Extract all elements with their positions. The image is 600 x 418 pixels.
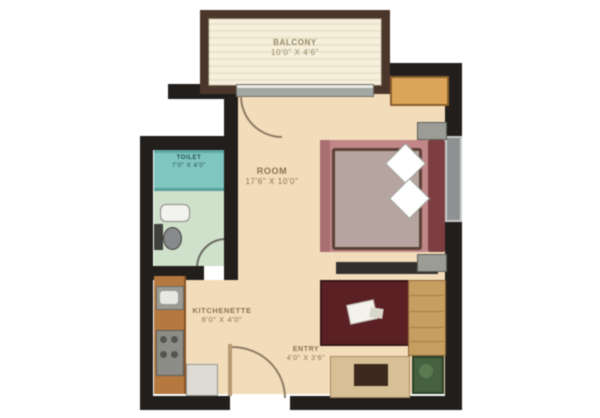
- room-dims: 17'6" X 10'0": [245, 177, 298, 187]
- bathroom-sink: [160, 204, 190, 222]
- refrigerator: [186, 364, 218, 396]
- toilet-tank: [154, 224, 163, 250]
- balcony-name: BALCONY: [271, 38, 319, 48]
- burner-icon: [171, 351, 178, 358]
- bed-footboard: [320, 140, 330, 252]
- burner-icon: [160, 351, 167, 358]
- wardrobe: [390, 76, 449, 106]
- bookshelf-unit: [408, 280, 446, 356]
- stove: [156, 330, 184, 376]
- kitchenette-name: KITCHENETTE: [192, 306, 251, 315]
- room-name: ROOM: [245, 166, 298, 177]
- wall-right: [445, 63, 462, 410]
- kitchen-sink: [156, 286, 184, 310]
- room-label: ROOM 17'6" X 10'0": [245, 166, 298, 187]
- balcony-label: BALCONY 10'0" X 4'6": [271, 38, 319, 58]
- toilet-name: TOILET: [172, 155, 206, 163]
- shelf-line: [410, 311, 444, 312]
- shelf-line: [410, 327, 444, 328]
- window-right: [445, 136, 462, 222]
- toilet-bowl: [163, 227, 182, 250]
- wall-bottom-right: [290, 396, 462, 410]
- kitchenette-label: KITCHENETTE 8'0" X 4'0": [192, 306, 251, 325]
- burner-icon: [160, 336, 167, 343]
- bed-headboard: [428, 140, 445, 252]
- nightstand-top: [417, 122, 447, 140]
- entry-label: ENTRY 4'0" X 3'6": [287, 346, 325, 364]
- shelf-line: [410, 341, 444, 342]
- nightstand-bottom: [417, 254, 447, 272]
- sofa-cushion: [354, 364, 388, 386]
- shelf-line: [410, 295, 444, 296]
- toilet-dims: 7'0" X 4'0": [172, 163, 206, 171]
- toilet-label: TOILET 7'0" X 4'0": [172, 155, 206, 170]
- entry-name: ENTRY: [287, 346, 325, 355]
- wall-bathroom-right: [224, 136, 238, 280]
- balcony-dims: 10'0" X 4'6": [271, 48, 319, 58]
- plant-icon: [419, 364, 433, 378]
- table-top-item-small: [369, 307, 383, 319]
- burner-icon: [171, 336, 178, 343]
- entry-dims: 4'0" X 3'6": [287, 355, 325, 364]
- kitchenette-dims: 8'0" X 4'0": [192, 315, 251, 324]
- floor-plan: BALCONY 10'0" X 4'6" ROOM 17': [140, 8, 462, 412]
- wall-bottom-left: [140, 396, 230, 410]
- sink-basin: [160, 291, 178, 304]
